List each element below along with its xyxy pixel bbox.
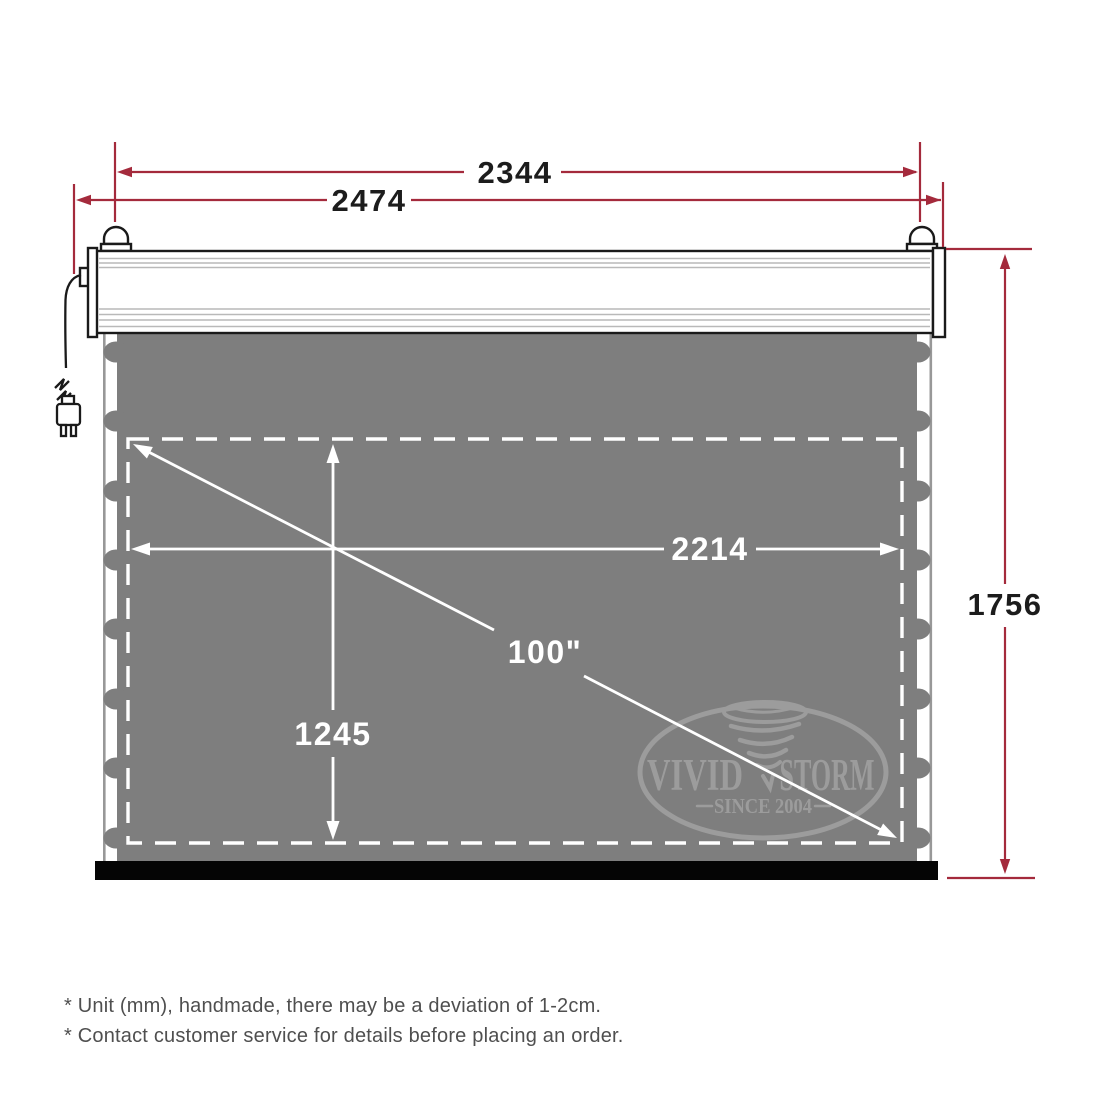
- footnote-unit: * Unit (mm), handmade, there may be a de…: [64, 995, 601, 1017]
- viewing-height-label: 1245: [294, 716, 371, 752]
- watermark-tagline: SINCE 2004: [714, 794, 812, 818]
- right-end-cap: [933, 248, 945, 337]
- watermark-brand-right: STORM: [780, 750, 875, 800]
- viewing-width-label: 2214: [671, 531, 748, 567]
- left-end-cap: [88, 248, 97, 337]
- housing-width-label: 2474: [332, 183, 407, 218]
- mount-bracket-icon: [101, 227, 131, 251]
- overall-height-dimension: 1756: [946, 249, 1042, 878]
- bottom-weight-bar: [95, 861, 938, 880]
- top-width-dimension: 2344: [115, 142, 920, 222]
- power-plug-icon: [57, 396, 80, 436]
- overall-height-label: 1756: [968, 587, 1043, 622]
- cord-break-symbol: [55, 379, 69, 390]
- power-cord: [55, 275, 81, 436]
- top-width-label: 2344: [478, 155, 553, 190]
- diagonal-label: 100": [508, 634, 583, 670]
- diagram-canvas: VIVID STORM SINCE 2004: [0, 0, 1096, 1096]
- footnote-contact: * Contact customer service for details b…: [64, 1025, 624, 1047]
- left-tension-strip: [103, 334, 106, 861]
- screen-housing: [80, 227, 945, 337]
- right-tension-strip: [930, 334, 933, 861]
- watermark-brand-left: VIVID: [647, 750, 743, 800]
- dimension-diagram: VIVID STORM SINCE 2004: [0, 0, 1096, 1096]
